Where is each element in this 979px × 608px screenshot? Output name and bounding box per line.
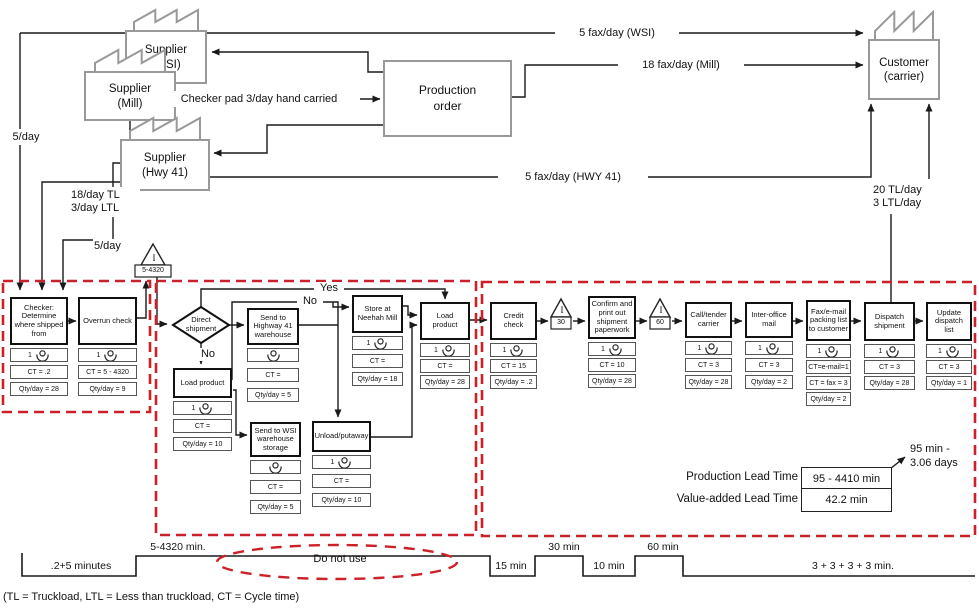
timeline-segment-label: 60 min bbox=[640, 542, 686, 555]
process-cell: CT = 3 bbox=[864, 360, 915, 374]
process-title: Load product bbox=[173, 368, 232, 398]
value-added-lead-time-label: Value-added Lead Time bbox=[628, 493, 798, 505]
process-cell: CT = bbox=[352, 354, 403, 368]
legend-footnote: (TL = Truckload, LTL = Less than trucklo… bbox=[3, 591, 299, 603]
process-cell: Qty/day = 28 bbox=[685, 375, 732, 389]
operator-count: 1 bbox=[367, 340, 371, 347]
process-title: Unload/putaway bbox=[312, 421, 371, 452]
operator-row: 1 bbox=[864, 344, 915, 358]
process-title: Call/tender carrier bbox=[685, 302, 732, 338]
process-cell: Qty/day = 2 bbox=[806, 392, 851, 406]
operator-count: 1 bbox=[28, 352, 32, 359]
process-cell: CT = 3 bbox=[926, 360, 972, 374]
process-load-product: Load product1CT =Qty/day = 28 bbox=[420, 302, 470, 389]
supplier-mill-factory: Supplier (Mill) bbox=[84, 48, 176, 121]
process-title: Load product bbox=[420, 302, 470, 340]
timeline-segment-label: 15 min bbox=[488, 561, 534, 574]
process-title: Inter-office mail bbox=[745, 302, 793, 338]
process-cell: Qty/day = 10 bbox=[173, 437, 232, 451]
process-cell: Qty/day = 28 bbox=[10, 382, 68, 396]
label-fax-hwy41: 5 fax/day (HWY 41) bbox=[498, 169, 648, 185]
operator-row: 1 bbox=[78, 348, 137, 362]
process-cell: CT = bbox=[312, 474, 371, 488]
operator-row: 1 bbox=[420, 343, 470, 357]
operator-icon bbox=[266, 350, 281, 361]
production-order-box: Production order bbox=[383, 60, 512, 137]
operator-count: 1 bbox=[503, 347, 507, 354]
process-send-hwy41: Send to Highway 41 warehouseCT =Qty/day … bbox=[247, 308, 299, 402]
operator-count: 1 bbox=[698, 345, 702, 352]
process-title: Store at Neehah Mill bbox=[352, 295, 403, 333]
operator-count: 1 bbox=[601, 346, 605, 353]
do-not-use-label: Do not use bbox=[295, 553, 385, 565]
process-cell: CT = fax = 3 bbox=[806, 376, 851, 390]
operator-row: 1 bbox=[312, 455, 371, 469]
process-cell: Qty/day = 28 bbox=[588, 374, 636, 388]
inventory-value: 5-4320 bbox=[135, 267, 171, 274]
operator-icon bbox=[103, 350, 118, 361]
process-load-product-no: Load product1CT =Qty/day = 10 bbox=[173, 368, 232, 451]
operator-icon bbox=[198, 403, 213, 414]
process-cell: Qty/day = .2 bbox=[490, 375, 537, 389]
label-fax-wsi: 5 fax/day (WSI) bbox=[555, 25, 679, 41]
process-title: Overrun check bbox=[78, 297, 137, 345]
process-cell: CT = 3 bbox=[685, 358, 732, 372]
process-title: Dispatch shipment bbox=[864, 302, 915, 341]
operator-row: 1 bbox=[352, 336, 403, 350]
label-per-day-left: 5/day bbox=[3, 129, 49, 145]
operator-row: 1 bbox=[745, 341, 793, 355]
supplier-hwy41-factory: Supplier (Hwy 41) bbox=[120, 116, 210, 191]
process-inter-office: Inter-office mail1CT = 3Qty/day = 2 bbox=[745, 302, 793, 389]
customer-factory: Customer (carrier) bbox=[868, 10, 940, 100]
label-tl-customer: 20 TL/day 3 LTL/day bbox=[872, 181, 950, 212]
process-cell: Qty/day = 1 bbox=[926, 376, 972, 390]
operator-row: 1 bbox=[806, 344, 851, 358]
operator-icon bbox=[824, 346, 839, 357]
operator-row: 1 bbox=[490, 343, 537, 357]
process-update-list: Update dispatch list1CT = 3Qty/day = 1 bbox=[926, 302, 972, 390]
process-dispatch: Dispatch shipment1CT = 3Qty/day = 28 bbox=[864, 302, 915, 390]
operator-icon bbox=[885, 346, 900, 357]
lead-time-callout-arrow bbox=[890, 457, 905, 469]
operator-icon bbox=[35, 350, 50, 361]
production-lead-time-label: Production Lead Time bbox=[640, 471, 798, 483]
process-overrun: Overrun check1CT = 5 - 4320Qty/day = 9 bbox=[78, 297, 137, 396]
process-confirm-paperwork: Confirm and print out shipment paperwork… bbox=[588, 296, 636, 388]
process-call-tender: Call/tender carrier1CT = 3Qty/day = 28 bbox=[685, 302, 732, 389]
process-title: Update dispatch list bbox=[926, 302, 972, 341]
process-cell: CT=e-mail=1 bbox=[806, 360, 851, 374]
timeline-segment-label: 10 min bbox=[585, 561, 633, 574]
operator-row bbox=[247, 348, 299, 362]
inventory-value: 60 bbox=[650, 319, 670, 326]
operator-count: 1 bbox=[938, 348, 942, 355]
supplier-hwy41-factory-label: Supplier (Hwy 41) bbox=[120, 140, 210, 191]
process-cell: CT = 3 bbox=[745, 358, 793, 372]
timeline-segment-label: 3 + 3 + 3 + 3 min. bbox=[793, 561, 913, 575]
customer-factory-label: Customer (carrier) bbox=[868, 40, 940, 100]
process-checker: Checker: Determine where shipped from1CT… bbox=[10, 297, 68, 396]
label-per-day-hwy: 5/day bbox=[93, 239, 135, 254]
process-cell: CT = bbox=[247, 368, 299, 382]
process-title: Confirm and print out shipment paperwork bbox=[588, 296, 636, 339]
label-no-upper: No bbox=[297, 295, 323, 308]
operator-row: 1 bbox=[685, 341, 732, 355]
label-checker-pad: Checker pad 3/day hand carried bbox=[158, 91, 360, 107]
process-cell: Qty/day = 5 bbox=[247, 388, 299, 402]
operator-icon bbox=[945, 346, 960, 357]
operator-icon bbox=[373, 338, 388, 349]
inventory-symbol: I bbox=[146, 253, 162, 263]
process-cell: CT = 15 bbox=[490, 359, 537, 373]
operator-icon bbox=[337, 457, 352, 468]
label-fax-mill: 18 fax/day (Mill) bbox=[618, 57, 744, 73]
operator-row: 1 bbox=[173, 401, 232, 415]
process-title: Checker: Determine where shipped from bbox=[10, 297, 68, 345]
process-cell: Qty/day = 2 bbox=[745, 375, 793, 389]
value-added-lead-time-value: 42.2 min bbox=[801, 488, 892, 512]
process-cell: CT = bbox=[420, 359, 470, 373]
process-cell: CT = bbox=[250, 480, 301, 494]
inventory-symbol: I bbox=[554, 305, 570, 315]
operator-icon bbox=[608, 344, 623, 355]
process-cell: Qty/day = 28 bbox=[420, 375, 470, 389]
process-cell: Qty/day = 5 bbox=[250, 500, 301, 514]
operator-count: 1 bbox=[331, 459, 335, 466]
process-title: Send to Highway 41 warehouse bbox=[247, 308, 299, 345]
operator-row: 1 bbox=[588, 342, 636, 356]
lead-time-range-callout: 95 min - 3.06 days bbox=[910, 443, 958, 471]
operator-count: 1 bbox=[818, 348, 822, 355]
process-cell: CT = 5 - 4320 bbox=[78, 365, 137, 379]
process-store-mill: Store at Neehah Mill1CT =Qty/day = 18 bbox=[352, 295, 403, 386]
decision-label: Direct shipment bbox=[171, 312, 231, 338]
process-credit-check: Credit check1CT = 15Qty/day = .2 bbox=[490, 302, 537, 389]
process-send-wsi: Send to WSI warehouse storageCT =Qty/day… bbox=[250, 422, 301, 514]
process-cell: Qty/day = 9 bbox=[78, 382, 137, 396]
operator-icon bbox=[441, 345, 456, 356]
operator-count: 1 bbox=[434, 347, 438, 354]
operator-count: 1 bbox=[758, 345, 762, 352]
process-unload-putaway: Unload/putaway1CT =Qty/day = 10 bbox=[312, 421, 371, 507]
timeline-segment-label: 30 min bbox=[541, 542, 587, 555]
operator-icon bbox=[765, 343, 780, 354]
operator-icon bbox=[509, 345, 524, 356]
operator-count: 1 bbox=[97, 352, 101, 359]
process-cell: Qty/day = 28 bbox=[864, 376, 915, 390]
operator-row bbox=[250, 460, 301, 474]
inventory-symbol: I bbox=[653, 305, 669, 315]
process-title: Send to WSI warehouse storage bbox=[250, 422, 301, 457]
process-cell: CT = bbox=[173, 419, 232, 433]
timeline-segment-label: .2+5 minutes bbox=[25, 561, 137, 575]
process-cell: Qty/day = 18 bbox=[352, 372, 403, 386]
operator-icon bbox=[704, 343, 719, 354]
label-yes: Yes bbox=[314, 282, 344, 295]
process-cell: CT = .2 bbox=[10, 365, 68, 379]
process-fax-email: Fax/e-mail packing list to customer1CT=e… bbox=[806, 300, 851, 406]
operator-row: 1 bbox=[10, 348, 68, 362]
operator-count: 1 bbox=[879, 348, 883, 355]
label-tl-ltl: 18/day TL 3/day LTL bbox=[70, 187, 140, 217]
timeline-segment-label: 5-4320 min. bbox=[136, 542, 220, 556]
process-cell: CT = 10 bbox=[588, 358, 636, 372]
label-no-lower: No bbox=[195, 348, 221, 361]
operator-icon bbox=[268, 462, 283, 473]
process-title: Credit check bbox=[490, 302, 537, 340]
operator-row: 1 bbox=[926, 344, 972, 358]
inventory-value: 30 bbox=[551, 319, 571, 326]
process-cell: Qty/day = 10 bbox=[312, 493, 371, 507]
process-title: Fax/e-mail packing list to customer bbox=[806, 300, 851, 341]
operator-count: 1 bbox=[192, 405, 196, 412]
value-stream-map: Production order Direct shipment I 5-432… bbox=[0, 0, 979, 608]
